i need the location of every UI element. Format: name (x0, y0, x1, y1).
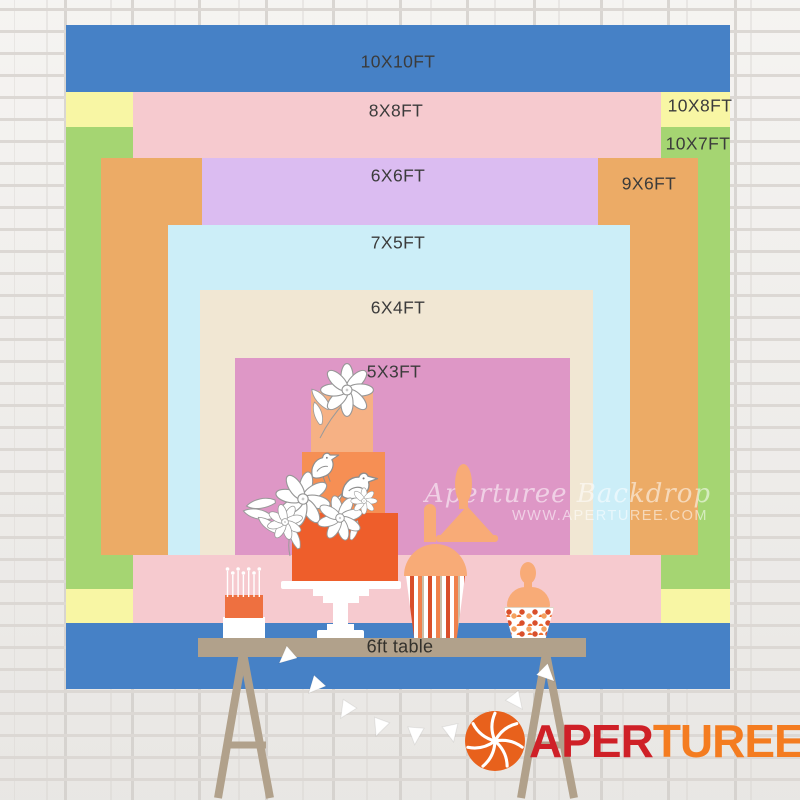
aperture-icon (464, 710, 526, 772)
candy-jar-knob (520, 562, 536, 584)
size-label-6x4ft: 6X4FT (371, 298, 426, 319)
size-label-10x10ft: 10X10FT (361, 52, 436, 73)
mini-cake-tier (225, 595, 263, 618)
cake-tier-middle (302, 452, 385, 513)
size-label-6x6ft: 6X6FT (371, 166, 426, 187)
size-label-8x8ft: 8X8FT (369, 101, 424, 122)
cake-tier-top (311, 391, 373, 452)
size-label-10x8ft: 10X8FT (668, 96, 733, 117)
jar-silhouette-finial (455, 464, 472, 504)
watermark-url: WWW.APERTUREE.COM (495, 508, 725, 524)
jar-silhouette-base (436, 535, 498, 542)
cake-stand-plate (281, 581, 401, 589)
brand-name-part1: APER (529, 715, 653, 767)
cake-stand-stem (333, 603, 348, 626)
size-label-10x7ft: 10X7FT (666, 134, 731, 155)
size-layers: 10X10FT10X8FT10X7FT8X8FT9X6FT6X6FT7X5FT6… (0, 0, 800, 800)
table-size-label: 6ft table (367, 637, 434, 658)
backdrop-size-chart: 10X10FT10X8FT10X7FT8X8FT9X6FT6X6FT7X5FT6… (0, 0, 800, 800)
brand-name-part2: TUREE (653, 715, 800, 767)
mini-cake-base (223, 617, 265, 638)
jar-silhouette-pillar (424, 504, 436, 542)
size-label-9x6ft: 9X6FT (622, 174, 677, 195)
cake-stand-step (323, 596, 359, 603)
size-label-5x3ft: 5X3FT (367, 362, 422, 383)
size-label-7x5ft: 7X5FT (371, 233, 426, 254)
cake-stand-step (313, 589, 369, 596)
brand-name: APERTUREE (529, 718, 800, 764)
size-layer-5x3ft (235, 358, 570, 555)
striped-jar-body (406, 576, 465, 639)
cake-tier-bottom (292, 513, 398, 581)
brand-logo: APERTUREE (464, 710, 800, 772)
